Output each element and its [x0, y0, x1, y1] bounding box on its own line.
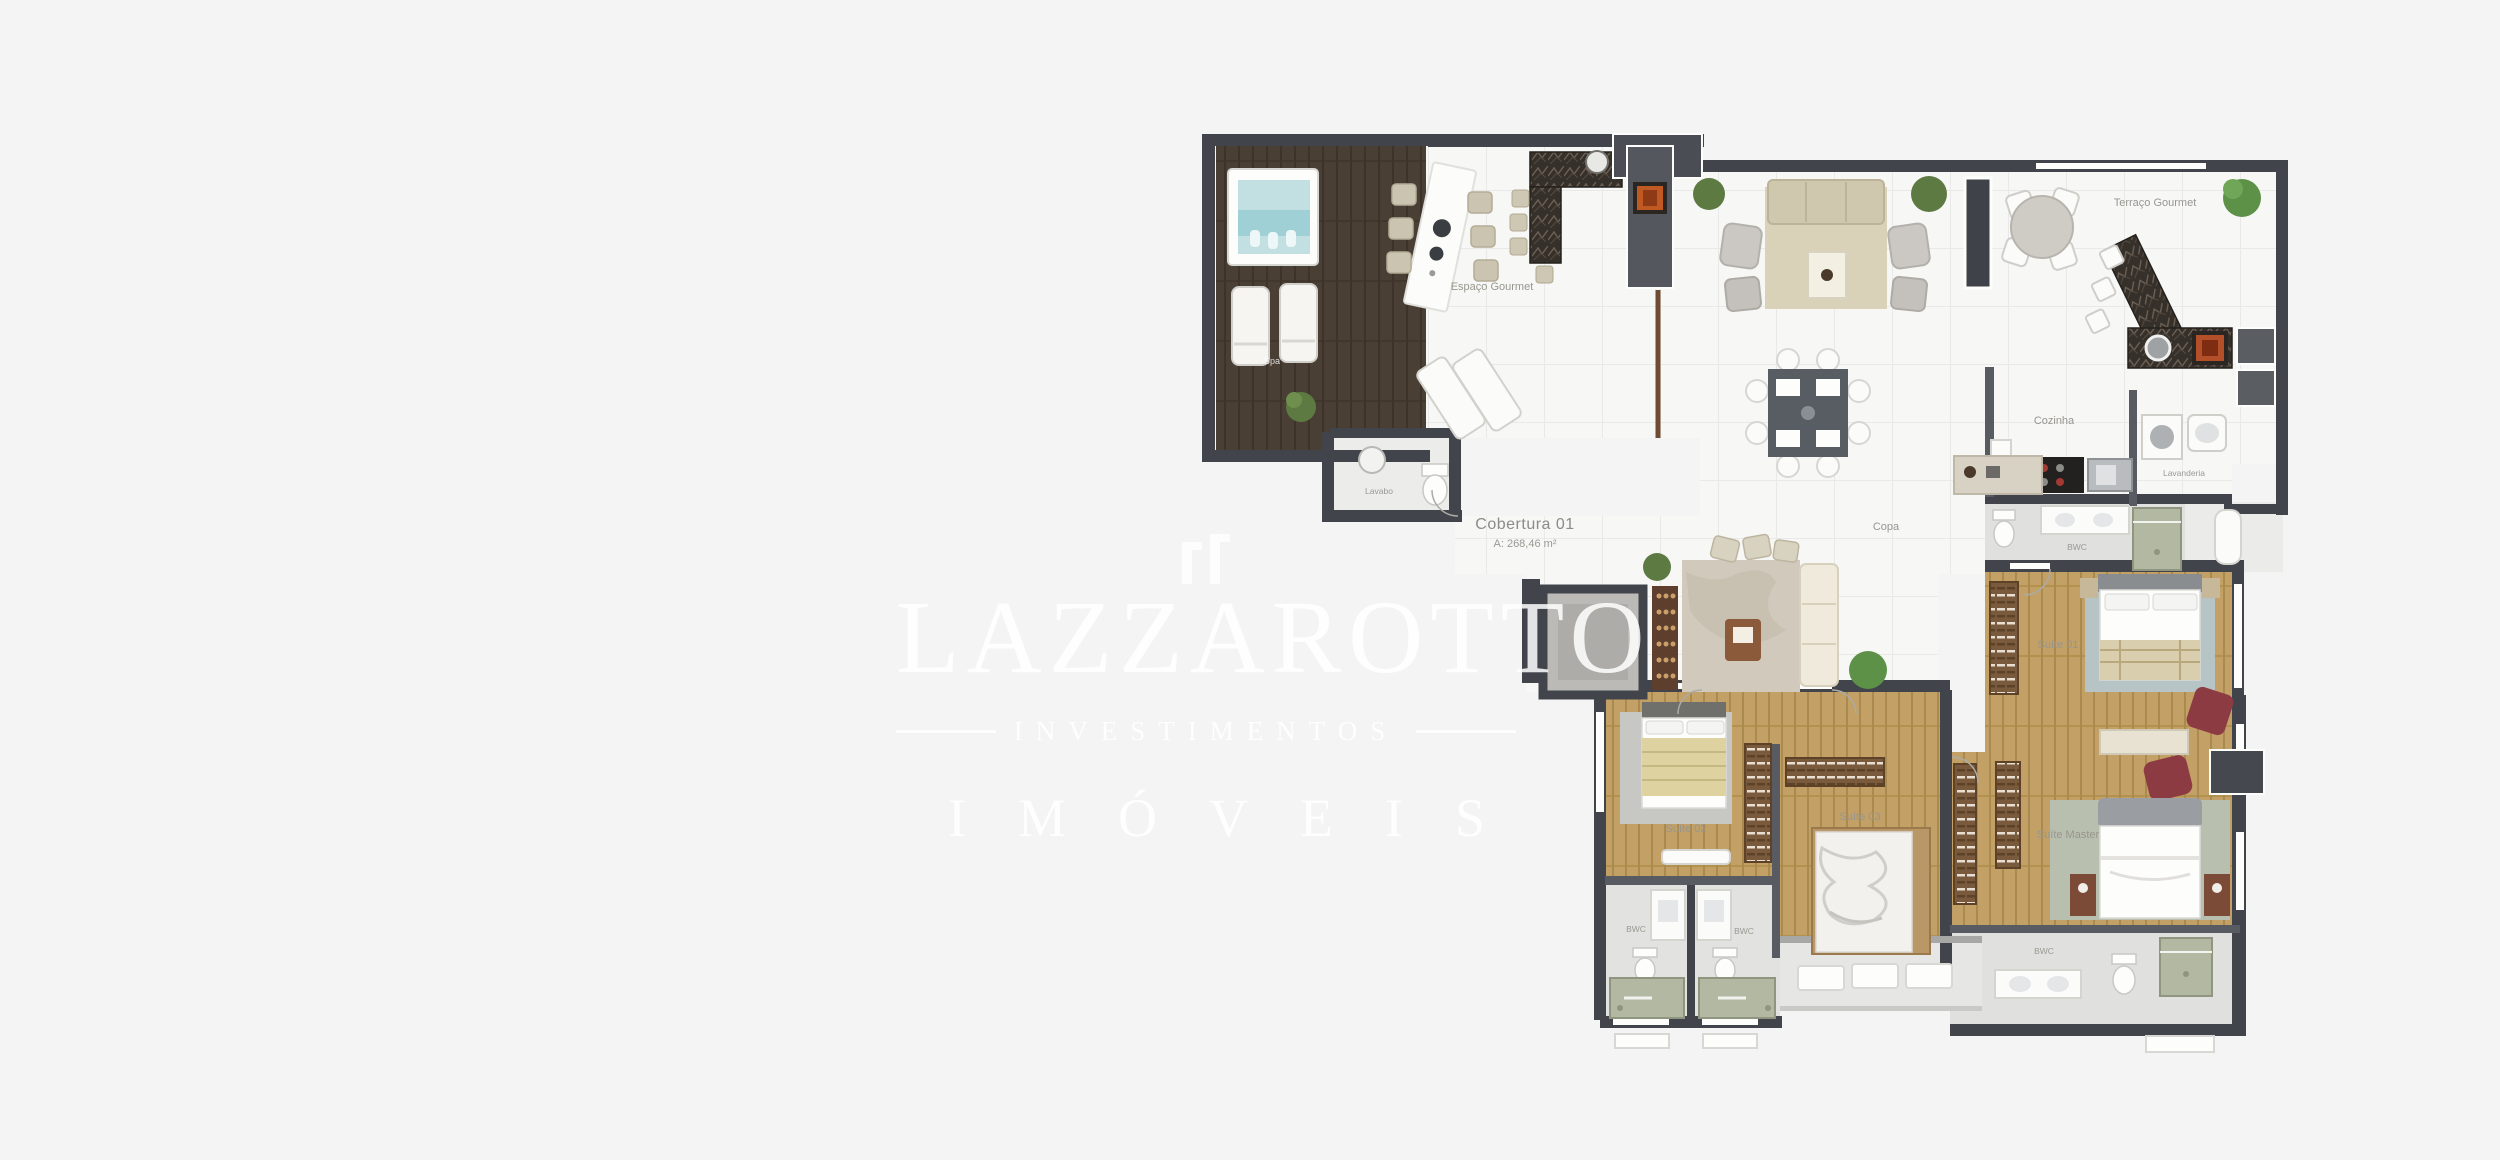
wall	[1322, 432, 1334, 522]
page-canvas: { "plan": { "title": "Cobertura 01", "ar…	[0, 0, 2500, 1160]
suite02-bed	[1642, 702, 1726, 808]
lavabo-toilet	[1422, 464, 1448, 505]
wardrobe	[1990, 582, 2018, 694]
ac-condenser	[1906, 964, 1952, 988]
wall	[2276, 160, 2288, 515]
suite03-bed	[1812, 828, 1930, 954]
round-table-set	[2001, 187, 2080, 271]
master-bwc-label: BWC	[2034, 946, 2054, 956]
copa-label: Copa	[1873, 521, 1900, 533]
wall	[1330, 428, 1456, 438]
suite03-label: Suíte 03	[1840, 811, 1881, 823]
shower	[2160, 938, 2212, 996]
wall	[1202, 134, 1215, 462]
master-closet-rack	[1996, 762, 2020, 868]
wall	[2232, 932, 2246, 1036]
window	[1613, 1019, 1669, 1025]
kitchen-label: Cozinha	[2034, 415, 2075, 427]
plant	[1693, 178, 1725, 210]
bwc-suite01-label: BWC	[2067, 542, 2087, 552]
nightstand	[2070, 874, 2096, 916]
lavabo-label: Lavabo	[1365, 486, 1393, 496]
ac-condenser	[1798, 966, 1844, 990]
window-sill	[1615, 1034, 1669, 1048]
window-sill	[1703, 1034, 1757, 1048]
wall	[1687, 880, 1695, 1028]
ottoman	[1724, 276, 1761, 311]
bar-sink	[2146, 336, 2170, 360]
bwc02-label: BWC	[1734, 926, 1754, 936]
nightstand	[2204, 874, 2230, 916]
plant	[1849, 651, 1887, 689]
window	[2236, 832, 2244, 910]
family-sofa	[1800, 564, 1838, 686]
suite03-wardrobe	[1786, 758, 1884, 786]
window	[2036, 163, 2206, 169]
ottoman	[1890, 276, 1927, 311]
bwc01-label: BWC	[1626, 924, 1646, 934]
wall-inner	[1950, 925, 2240, 933]
ironing-board	[2215, 510, 2241, 564]
master-label: Suíte Master	[2037, 829, 2100, 841]
spa-jet	[1250, 230, 1260, 247]
window	[1702, 1019, 1758, 1025]
floor-plan: Spa	[1196, 132, 2296, 1057]
bed-bench	[1662, 850, 1730, 864]
armchair	[1887, 223, 1930, 270]
divider-line	[896, 730, 996, 733]
plant-leaf	[1286, 392, 1302, 408]
window	[1596, 712, 1604, 812]
suite01-bed	[2080, 574, 2220, 680]
toilet	[1993, 510, 2015, 547]
plan-title: Cobertura 01	[1475, 516, 1574, 533]
tech-balcony	[1798, 964, 1952, 990]
floor-plan-svg: Spa	[1196, 132, 2296, 1057]
wall	[1202, 450, 1430, 462]
laundry-label: Lavanderia	[2163, 468, 2205, 478]
toilet	[2112, 954, 2136, 994]
master-closet-rack	[1954, 764, 1976, 904]
nightstand	[2080, 578, 2098, 598]
spa-jet	[1286, 230, 1296, 247]
suite01-desk	[2100, 730, 2188, 754]
spa-jet	[1268, 232, 1278, 249]
terrace-gourmet-label: Terraço Gourmet	[2114, 197, 2197, 209]
plant-leaf	[2223, 179, 2243, 199]
nightstand	[2202, 578, 2220, 598]
plan-area: A: 268,46 m²	[1494, 538, 1557, 550]
spa-label: Spa	[1264, 356, 1280, 366]
ac-condenser	[1852, 964, 1898, 988]
gourmet-label: Espaço Gourmet	[1451, 281, 1534, 293]
wall	[1322, 510, 1462, 522]
closet-wardrobe	[1745, 744, 1771, 862]
vanity	[2041, 506, 2129, 534]
door-gap	[2010, 563, 2050, 569]
toilet	[1633, 948, 1657, 982]
sofa	[1768, 180, 1884, 224]
wall-clock	[1586, 151, 1608, 173]
spa-tub	[1228, 169, 1318, 265]
suite01-label: Suíte 01	[2038, 639, 2079, 651]
wall	[1522, 579, 1540, 683]
master-tv-panel	[2210, 750, 2264, 794]
wall	[1449, 432, 1461, 522]
wall-inner	[1772, 744, 1780, 958]
plant	[1911, 176, 1947, 212]
tv-panel	[1965, 178, 1991, 288]
lavabo-sink	[1359, 447, 1385, 473]
wall	[1696, 160, 1998, 172]
window-sill	[2146, 1036, 2214, 1052]
wall	[1202, 134, 1428, 146]
wall	[1985, 494, 2232, 504]
balcony-edge	[1780, 1006, 1982, 1011]
wall-inner	[1605, 876, 1780, 885]
armchair	[1719, 223, 1762, 270]
window	[2234, 584, 2242, 688]
suite02-label: Suíte 02	[1666, 823, 1707, 835]
shower	[2133, 508, 2181, 570]
wall	[1950, 1024, 2246, 1036]
plant	[1643, 553, 1671, 581]
toilet	[1713, 948, 1737, 982]
